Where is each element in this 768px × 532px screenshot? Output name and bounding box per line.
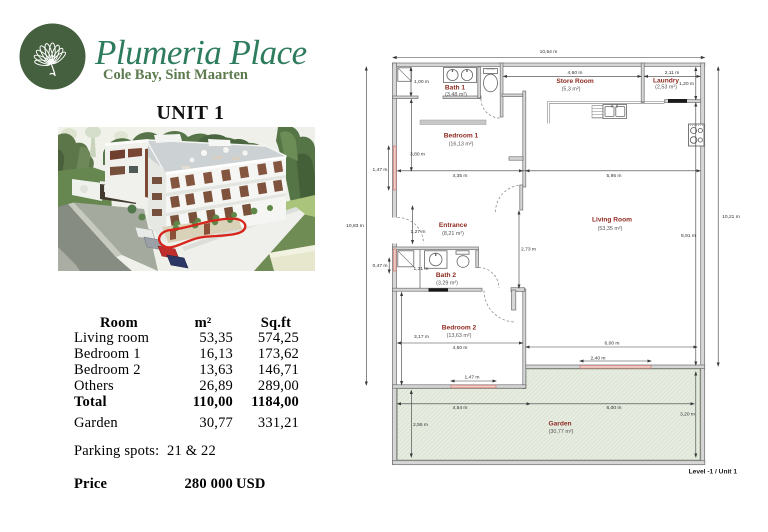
svg-text:Bath 2: Bath 2: [436, 272, 456, 279]
svg-text:5,95 m: 5,95 m: [607, 173, 622, 179]
svg-text:2,11 m: 2,11 m: [665, 70, 680, 76]
svg-text:3,20 m: 3,20 m: [680, 412, 695, 418]
svg-text:10,54 m: 10,54 m: [540, 49, 558, 55]
svg-text:3,17 m: 3,17 m: [414, 334, 429, 340]
svg-text:1,20 m: 1,20 m: [679, 81, 694, 87]
svg-text:6,00 m: 6,00 m: [607, 405, 622, 411]
svg-text:(53,35 m²): (53,35 m²): [598, 226, 623, 232]
svg-text:4,54 m: 4,54 m: [453, 405, 468, 411]
svg-text:Store Room: Store Room: [556, 78, 594, 85]
svg-text:(3,48 m²): (3,48 m²): [445, 92, 467, 98]
svg-text:10,21 m: 10,21 m: [722, 214, 740, 220]
svg-text:1,31 m: 1,31 m: [414, 266, 429, 272]
svg-text:1,00 m: 1,00 m: [414, 79, 429, 85]
svg-text:(2,53 m²): (2,53 m²): [655, 85, 677, 91]
svg-text:8,91 m: 8,91 m: [681, 233, 696, 239]
svg-text:Bedroom 2: Bedroom 2: [442, 325, 477, 332]
svg-text:1,27 m: 1,27 m: [411, 229, 426, 235]
svg-text:Garden: Garden: [548, 421, 571, 428]
svg-text:2,73 m: 2,73 m: [521, 247, 536, 253]
svg-text:2,40 m: 2,40 m: [591, 356, 606, 362]
svg-text:3,80 m: 3,80 m: [410, 152, 425, 158]
svg-text:Bedroom 1: Bedroom 1: [444, 133, 479, 140]
svg-text:4,35 m: 4,35 m: [453, 173, 468, 179]
svg-text:(16,13 m²): (16,13 m²): [449, 141, 474, 147]
svg-text:Entrance: Entrance: [439, 222, 468, 229]
svg-text:(8,21 m²): (8,21 m²): [442, 231, 464, 237]
svg-text:(30,77 m²): (30,77 m²): [549, 429, 574, 435]
svg-text:1,47 m: 1,47 m: [373, 167, 388, 173]
svg-text:4,50 m: 4,50 m: [453, 345, 468, 351]
svg-text:2,55 m: 2,55 m: [413, 422, 428, 428]
svg-text:(3,29 m²): (3,29 m²): [436, 280, 458, 286]
svg-text:10,83 m: 10,83 m: [346, 223, 364, 229]
svg-text:Bath 1: Bath 1: [445, 85, 465, 92]
svg-text:1,47 m: 1,47 m: [465, 375, 480, 381]
svg-text:Laundry: Laundry: [653, 78, 679, 85]
svg-text:Living Room: Living Room: [592, 217, 632, 224]
svg-text:(5,3 m²): (5,3 m²): [562, 87, 581, 93]
svg-text:(13,63 m²): (13,63 m²): [447, 333, 472, 339]
svg-text:6,00 m: 6,00 m: [605, 341, 620, 347]
svg-text:Level -1 / Unit 1: Level -1 / Unit 1: [689, 469, 738, 476]
svg-text:0,47 m: 0,47 m: [373, 263, 388, 269]
svg-text:4,60 m: 4,60 m: [568, 70, 583, 76]
